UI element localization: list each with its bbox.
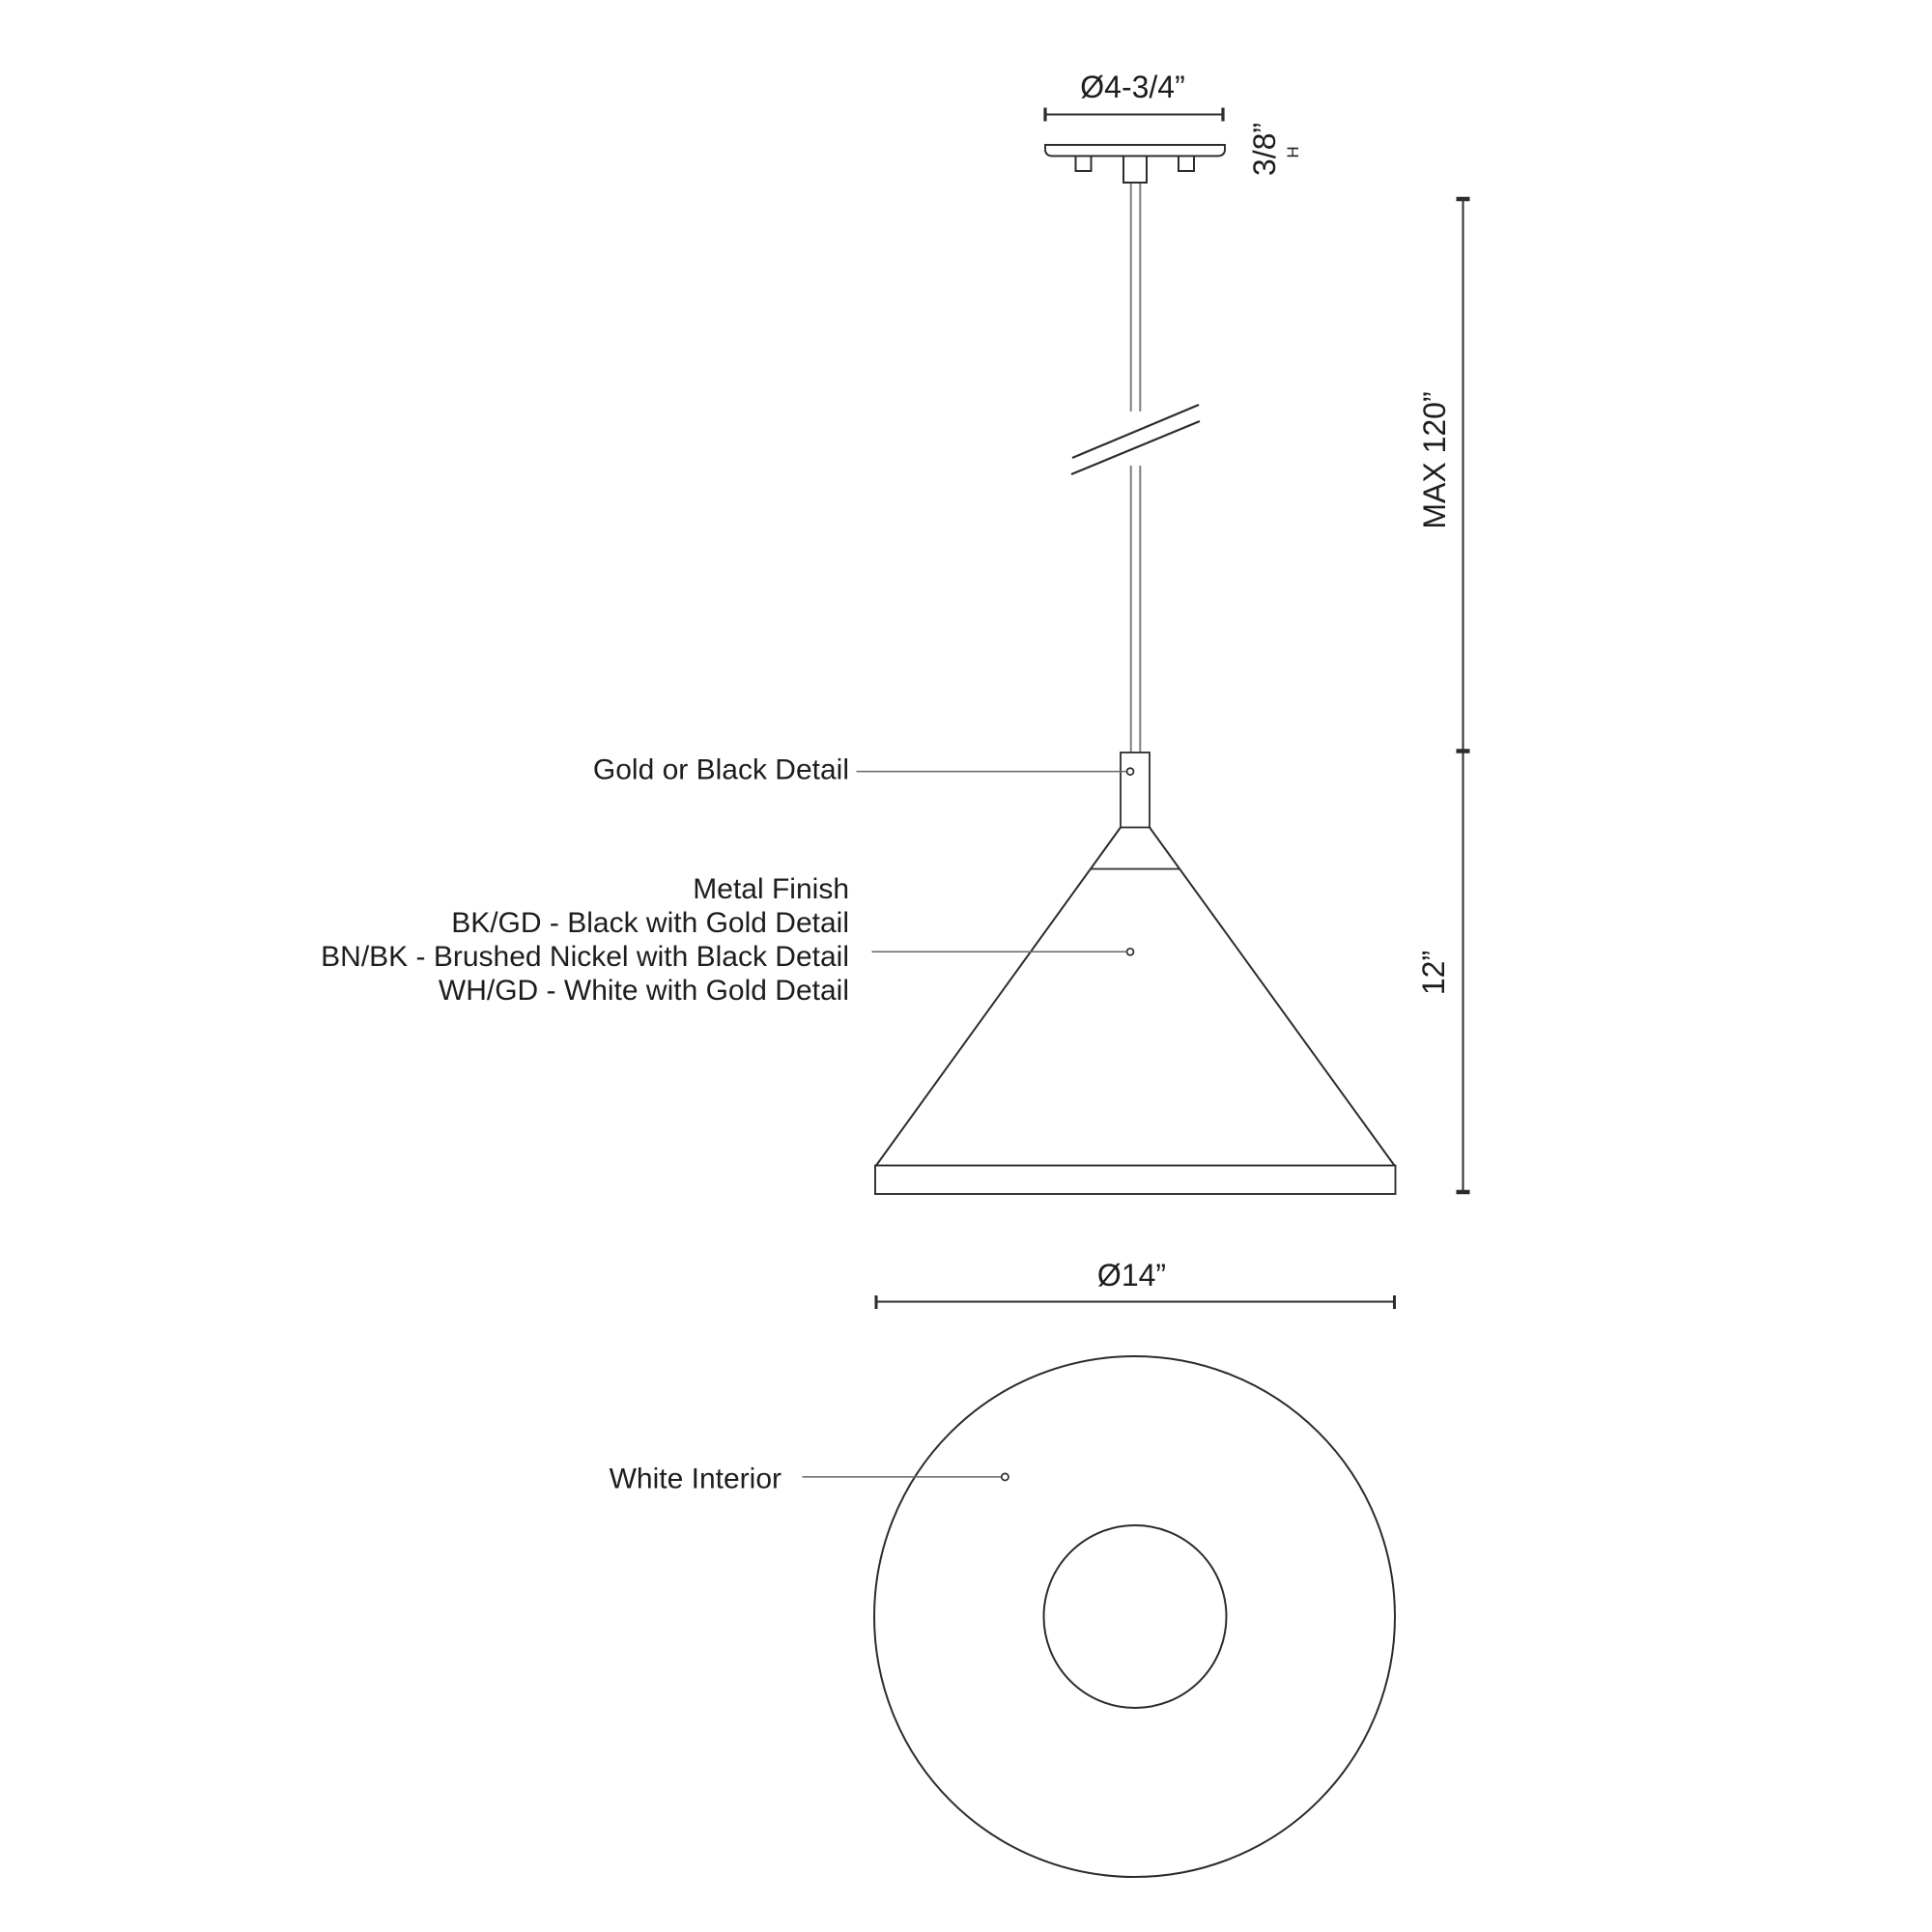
svg-text:Ø4-3/4”: Ø4-3/4”: [1080, 70, 1184, 104]
svg-text:Metal Finish: Metal Finish: [693, 873, 849, 905]
svg-text:12”: 12”: [1416, 951, 1451, 995]
svg-text:BN/BK - Brushed Nickel with Bl: BN/BK - Brushed Nickel with Black Detail: [321, 941, 849, 973]
svg-text:MAX 120”: MAX 120”: [1417, 391, 1452, 528]
svg-text:BK/GD - Black with Gold Detail: BK/GD - Black with Gold Detail: [451, 907, 849, 939]
svg-text:Ø14”: Ø14”: [1097, 1258, 1166, 1293]
svg-text:White Interior: White Interior: [610, 1463, 781, 1495]
svg-text:3/8”: 3/8”: [1247, 123, 1282, 176]
svg-text:H: H: [1284, 146, 1302, 157]
svg-text:WH/GD - White with Gold Detail: WH/GD - White with Gold Detail: [439, 975, 849, 1007]
svg-text:Gold or Black Detail: Gold or Black Detail: [593, 754, 849, 786]
